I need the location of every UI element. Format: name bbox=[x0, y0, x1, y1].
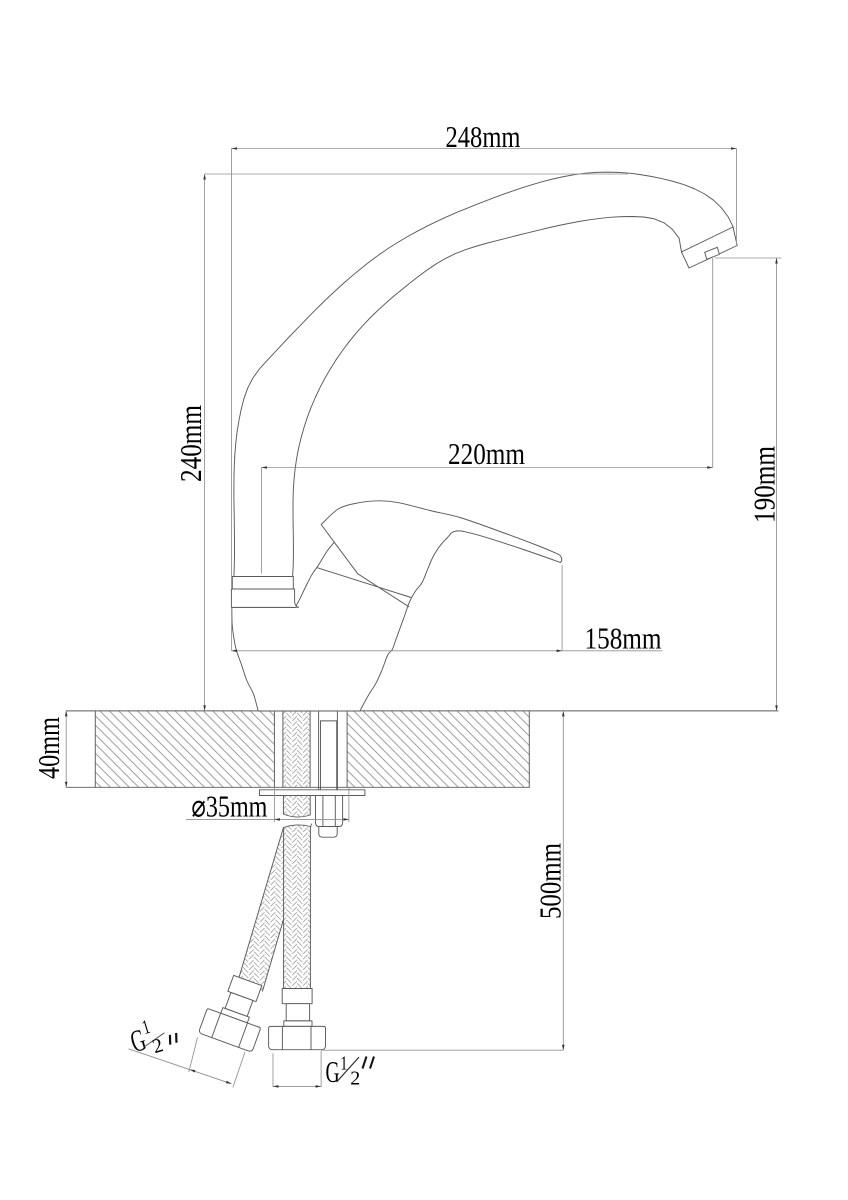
svg-text:2: 2 bbox=[350, 1067, 360, 1089]
svg-text:190mm: 190mm bbox=[747, 446, 782, 523]
svg-text:220mm: 220mm bbox=[448, 436, 525, 471]
svg-text:G: G bbox=[326, 1054, 340, 1089]
svg-text:40mm: 40mm bbox=[31, 717, 66, 779]
svg-text:⌀35mm: ⌀35mm bbox=[191, 789, 267, 824]
svg-text:248mm: 248mm bbox=[446, 119, 521, 154]
svg-text:158mm: 158mm bbox=[585, 621, 662, 656]
svg-text:240mm: 240mm bbox=[173, 405, 208, 482]
svg-text:500mm: 500mm bbox=[533, 843, 568, 919]
